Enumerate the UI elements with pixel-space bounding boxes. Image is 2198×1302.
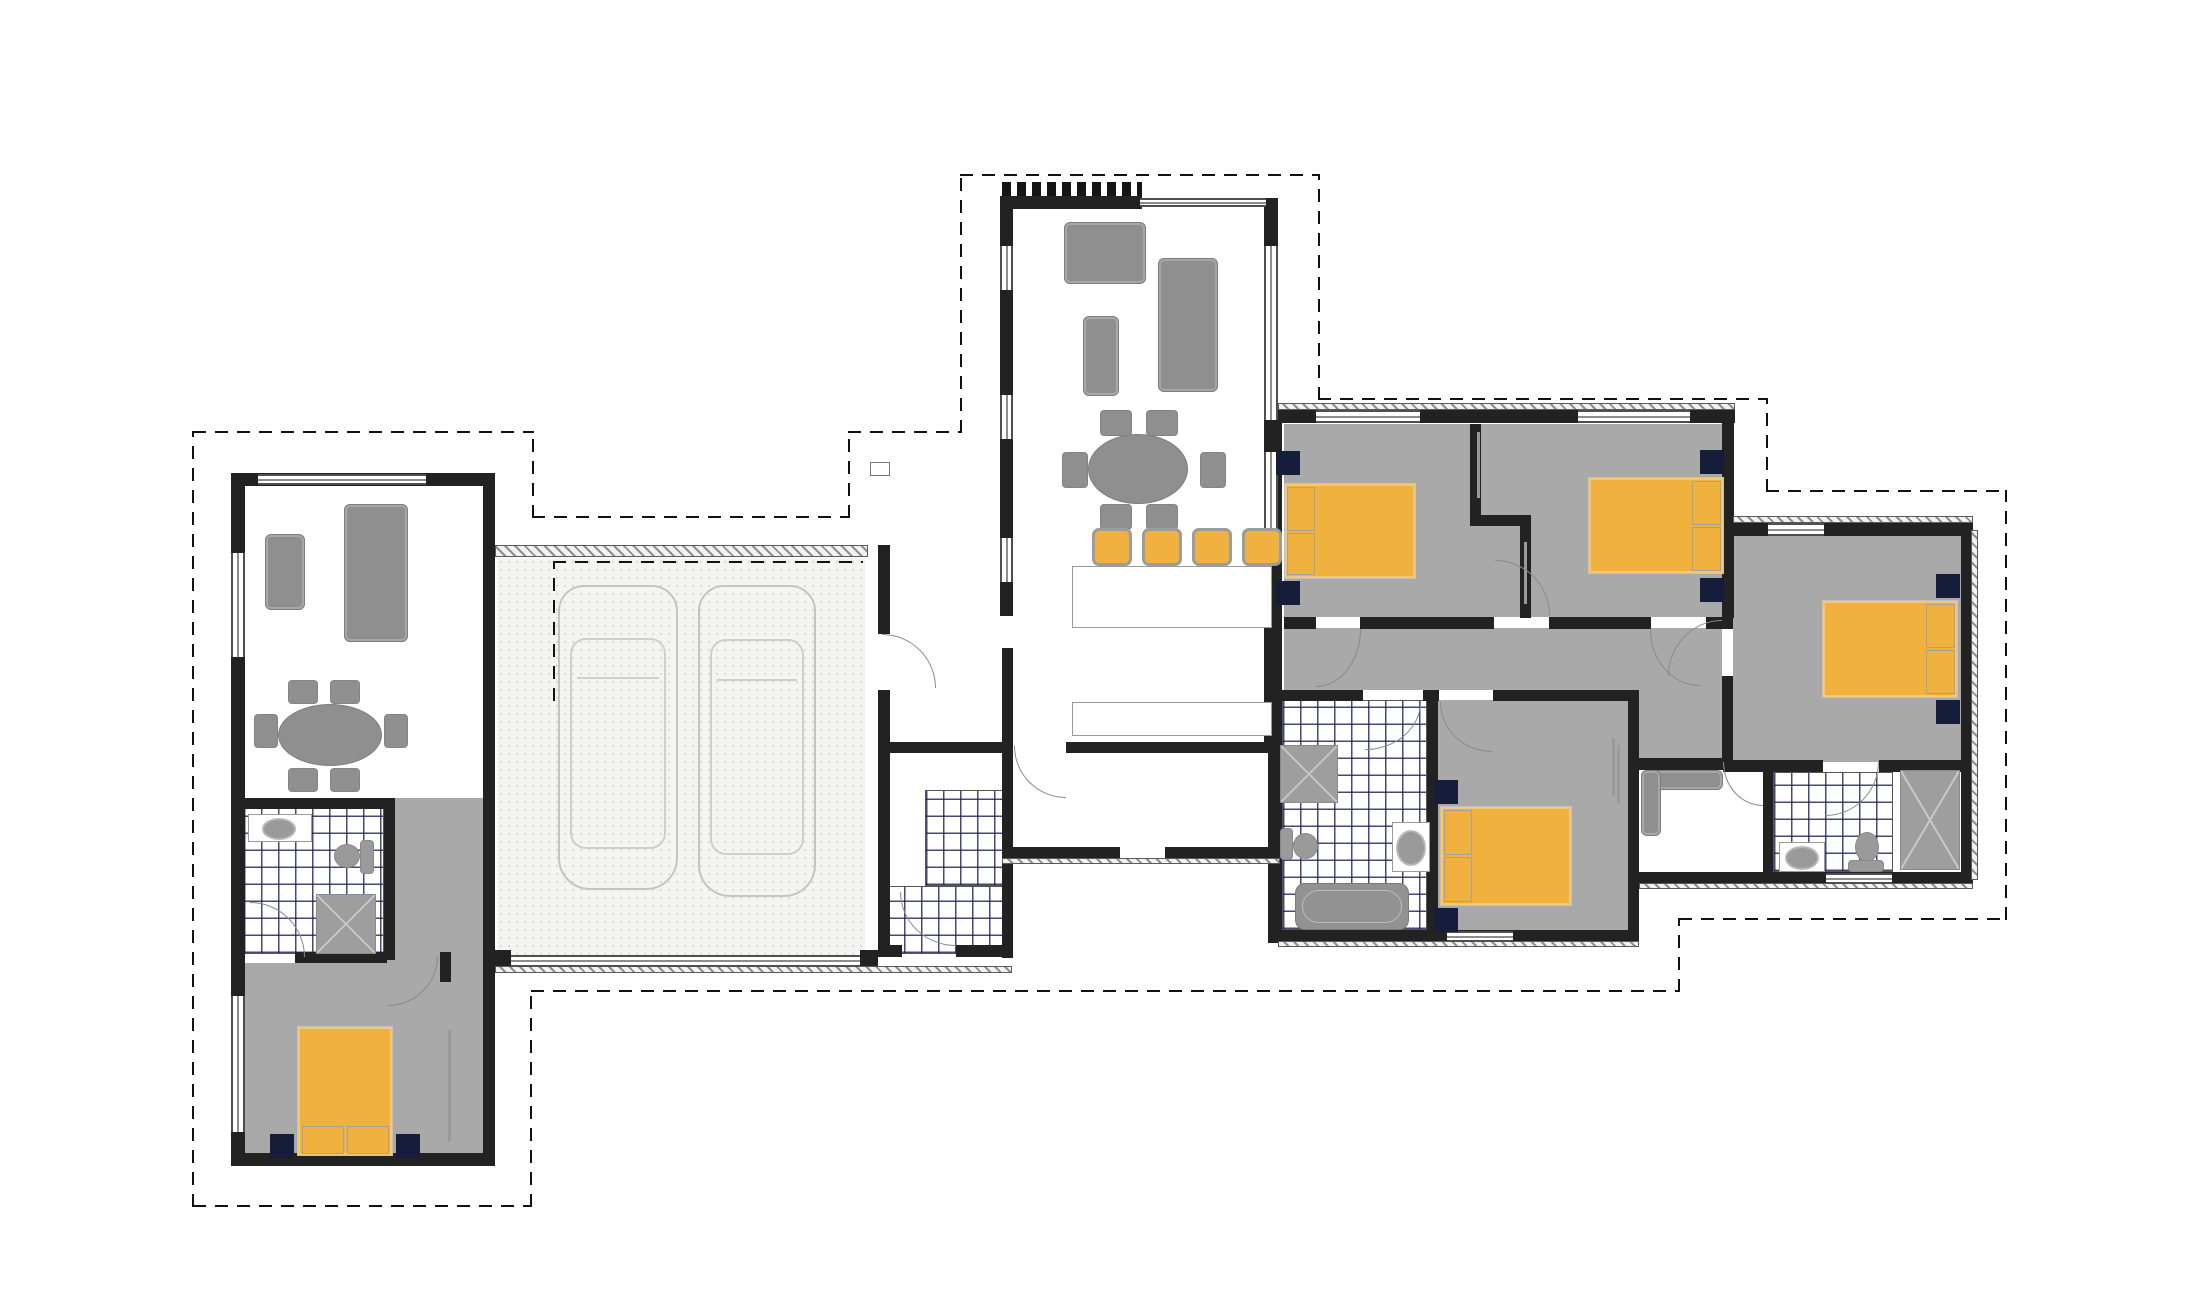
- boundary-segment: [531, 990, 1679, 992]
- left-bedroom-door-post: [440, 952, 451, 982]
- left-wall-window-1: [231, 553, 245, 657]
- garage-top-wall: [495, 545, 868, 557]
- master-left-wall-lower: [1722, 676, 1733, 760]
- hallway-bottom-wall-1: [1278, 690, 1363, 701]
- boundary-segment: [960, 175, 962, 433]
- ensuite-toilet-base: [1848, 860, 1884, 872]
- sofa-main: [1064, 222, 1146, 284]
- entry-post: [870, 462, 890, 476]
- central-left-window-1: [1000, 246, 1013, 290]
- robe-slider: [1612, 738, 1615, 796]
- central-right-window-1: [1264, 246, 1278, 420]
- door-wir: [1723, 762, 1763, 806]
- wir-ensuite-wall: [1763, 772, 1773, 873]
- ottoman: [1083, 316, 1119, 396]
- nightstand: [1700, 578, 1724, 602]
- dining-chair: [288, 680, 318, 704]
- pillow: [1287, 487, 1315, 531]
- door-garage-entry: [882, 634, 936, 688]
- bathtub: [1295, 883, 1409, 930]
- kitchen-back-wall: [1066, 742, 1278, 753]
- nightstand: [1434, 908, 1458, 932]
- left-toilet-bowl: [334, 844, 360, 868]
- boundary-segment: [848, 431, 850, 518]
- pillow: [1692, 527, 1721, 571]
- central-left-window-2: [1000, 395, 1013, 439]
- dining-table-main: [1088, 434, 1188, 504]
- pillow: [1926, 650, 1955, 694]
- central-left-window-3: [1000, 538, 1013, 582]
- main-bath-sink: [1396, 830, 1426, 866]
- left-bath-right-wall: [384, 798, 395, 960]
- garage-dash-v: [553, 561, 555, 701]
- boundary-segment: [1678, 918, 1680, 992]
- boundary-segment: [1766, 490, 2007, 492]
- bedrooms-bottom-wall-1: [1284, 617, 1316, 629]
- left-shower: [316, 894, 376, 954]
- bar-stool: [1092, 528, 1132, 566]
- nightstand: [1276, 451, 1300, 475]
- central-right-wall-upper: [1264, 198, 1278, 246]
- boundary-segment: [193, 431, 534, 433]
- bath-bedc-wall: [1427, 700, 1438, 931]
- dining-chair: [254, 714, 278, 748]
- boundary-segment: [1679, 918, 2007, 920]
- sofa-side: [1158, 258, 1218, 392]
- sofa-left-wing: [344, 504, 408, 642]
- ensuite-toilet-bowl: [1855, 832, 1879, 862]
- deck-ticks: [1002, 182, 1142, 196]
- entry-bottom-wall-left: [878, 945, 902, 957]
- hallway-bottom-wall-2: [1493, 690, 1629, 701]
- kitchen-back-counter: [1072, 702, 1272, 736]
- boundary-segment: [1318, 398, 1768, 400]
- nightstand: [396, 1134, 420, 1158]
- pillow: [1692, 481, 1721, 525]
- dining-chair: [1100, 504, 1132, 530]
- left-top-window: [258, 474, 426, 485]
- dining-chair: [330, 680, 360, 704]
- ensuite-bottom-hatch: [1639, 883, 1973, 889]
- garage-right-wall-lower: [878, 690, 890, 956]
- dining-table-left: [278, 704, 382, 766]
- wir-top-wall: [1639, 758, 1723, 770]
- ensuite-sink: [1785, 846, 1819, 870]
- bedroom-a-window: [1316, 410, 1420, 423]
- boundary-segment: [532, 516, 850, 518]
- central-bottom-hatch: [1002, 858, 1280, 864]
- kitchen-island: [1072, 566, 1272, 628]
- nightstand: [1276, 581, 1300, 605]
- boundary-segment: [848, 431, 962, 433]
- pillow: [347, 1126, 389, 1154]
- central-top-slider-window: [1140, 198, 1266, 207]
- floor-plan: [0, 0, 2198, 1302]
- entry-divider-wall: [884, 742, 1006, 753]
- left-wall-window-2: [231, 996, 245, 1132]
- boundary-segment: [192, 431, 194, 1207]
- dining-chair: [1062, 452, 1088, 488]
- bedrooms-bottom-wall-2: [1360, 617, 1494, 629]
- dining-chair: [330, 768, 360, 792]
- dining-chair: [1146, 410, 1178, 436]
- dining-chair: [288, 768, 318, 792]
- pillow: [302, 1126, 344, 1154]
- left-bath-sink: [262, 818, 296, 840]
- dining-chair: [384, 714, 408, 748]
- boundary-segment: [193, 1205, 531, 1207]
- robe-slider: [448, 1030, 451, 1142]
- robe-slider: [1477, 432, 1480, 498]
- nightstand: [1936, 574, 1960, 598]
- rightwing-top-hatch: [1278, 403, 1735, 410]
- nightstand: [1700, 450, 1724, 474]
- master-window: [1768, 523, 1824, 536]
- ensuite-shower: [1900, 770, 1960, 870]
- pillow: [1444, 810, 1472, 855]
- garage-door: [511, 955, 860, 967]
- dining-chair: [1100, 410, 1132, 436]
- door-hall: [1014, 746, 1066, 798]
- central-top-wall: [1000, 196, 1142, 209]
- bedc-right-wall: [1628, 690, 1639, 932]
- main-toilet-bowl: [1293, 833, 1318, 859]
- boundary-segment: [530, 990, 532, 1207]
- wir-wardrobe: [1641, 770, 1661, 836]
- dining-chair: [1200, 452, 1226, 488]
- bar-stool: [1192, 528, 1232, 566]
- central-left-wall-lower: [1002, 648, 1013, 754]
- bar-stool: [1242, 528, 1282, 566]
- boundary-segment: [532, 431, 534, 518]
- master-top-hatch: [1733, 516, 1973, 523]
- left-toilet-tank: [360, 840, 374, 874]
- garage-right-wall-upper: [878, 545, 890, 634]
- boundary-segment: [1766, 398, 1768, 492]
- entry-right-wall: [1002, 754, 1013, 958]
- armchair: [265, 534, 305, 610]
- ensuite-window: [1826, 873, 1892, 884]
- pillow: [1287, 533, 1315, 575]
- nightstand: [1434, 780, 1458, 804]
- pillow: [1444, 857, 1472, 902]
- main-shower: [1280, 745, 1338, 803]
- bedrooms-bottom-wall-3: [1549, 617, 1651, 629]
- boundary-segment: [2005, 490, 2007, 920]
- bedroom-b-window: [1578, 410, 1690, 423]
- boundary-segment: [960, 174, 1320, 176]
- car-1: [558, 585, 678, 890]
- nightstand: [270, 1134, 294, 1158]
- garage-dash-h: [553, 561, 863, 563]
- bar-stool: [1142, 528, 1182, 566]
- boundary-segment: [1318, 174, 1320, 400]
- pillow: [1926, 604, 1955, 648]
- master-right-hatch: [1971, 530, 1978, 880]
- garage-under-door-hatch: [495, 966, 1012, 973]
- bedroom-c-window: [1447, 931, 1513, 942]
- nightstand: [1936, 700, 1960, 724]
- left-wing-right-wall: [483, 473, 495, 1166]
- entry-tile-upper: [925, 790, 1007, 886]
- dining-chair: [1146, 504, 1178, 530]
- car-2: [698, 585, 816, 897]
- robe-slider: [1617, 745, 1620, 803]
- left-bath-top-wall: [243, 798, 395, 809]
- main-toilet-tank: [1280, 828, 1293, 860]
